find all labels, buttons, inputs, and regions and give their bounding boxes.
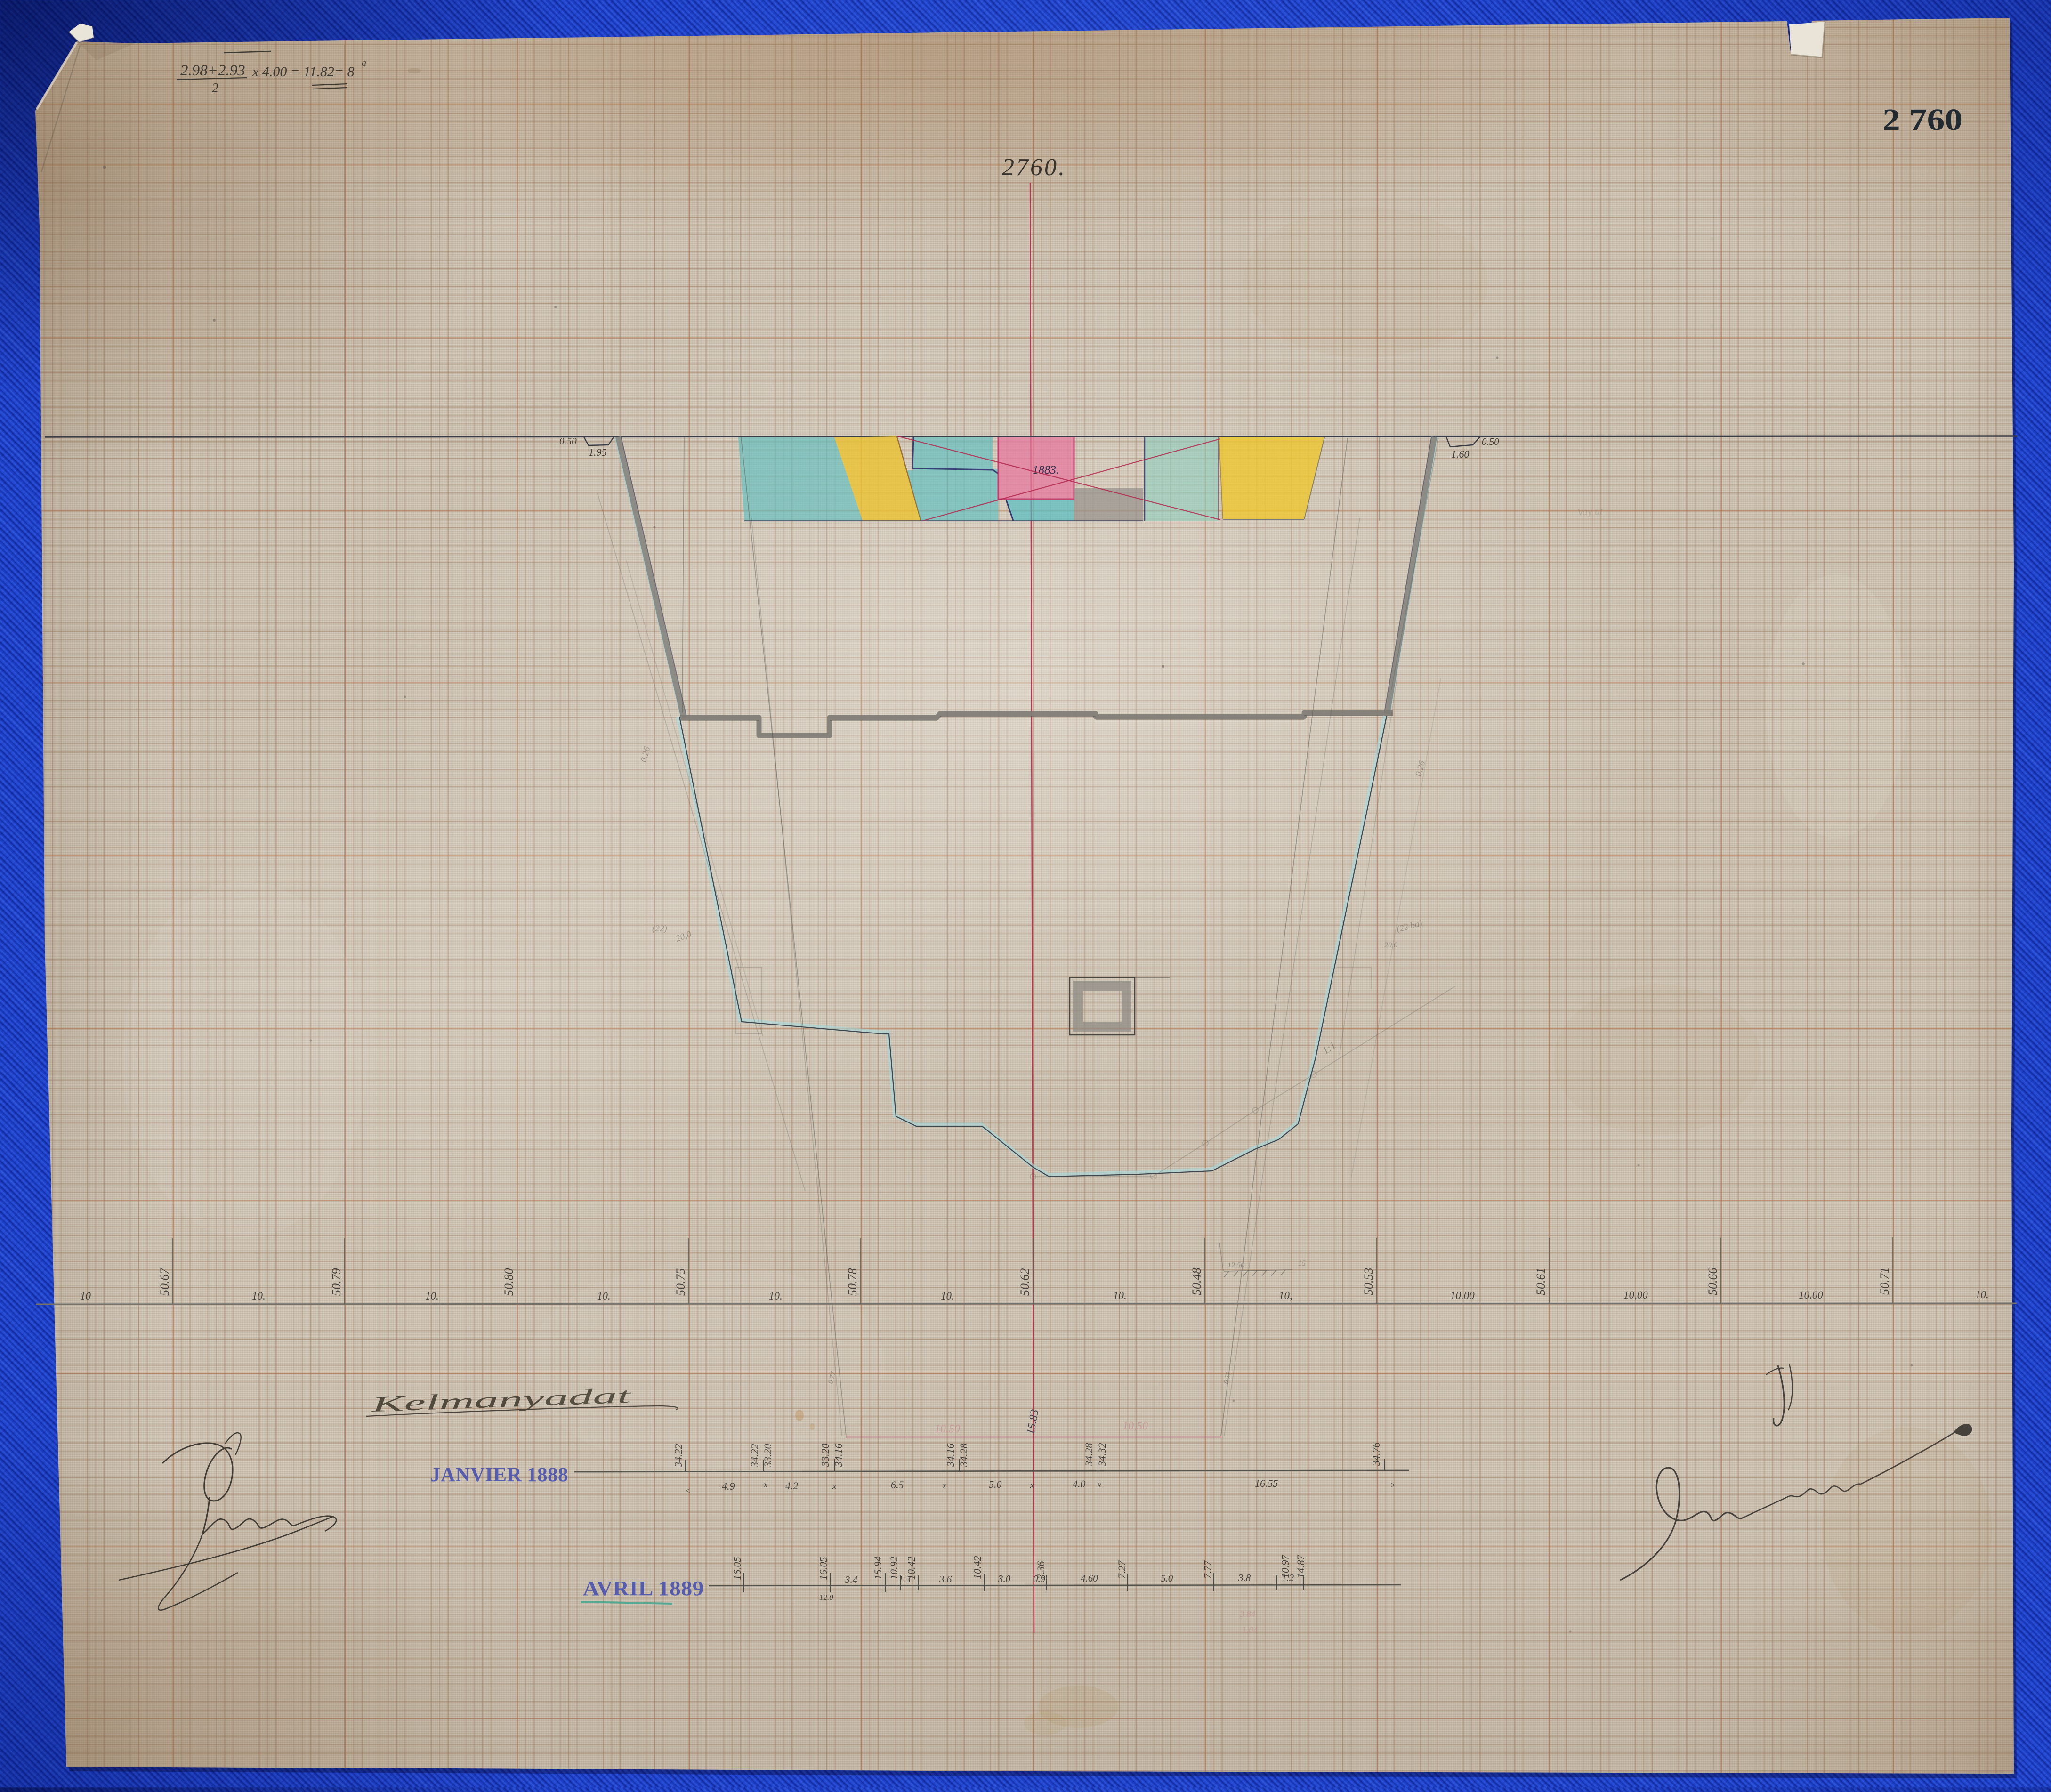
svg-text:3.84: 3.84 — [1239, 1609, 1256, 1619]
svg-text:(22): (22) — [652, 924, 667, 934]
svg-text:34.32: 34.32 — [1096, 1443, 1108, 1467]
svg-text:˃: ˃ — [1390, 1480, 1396, 1490]
svg-text:16.05: 16.05 — [731, 1557, 743, 1581]
svg-text:6.5: 6.5 — [891, 1479, 904, 1491]
svg-text:10.50: 10.50 — [935, 1423, 960, 1435]
svg-text:1.60: 1.60 — [1451, 448, 1470, 460]
svg-text:(22 ba): (22 ba) — [1396, 918, 1423, 935]
svg-text:15.94: 15.94 — [872, 1557, 884, 1580]
svg-text:12.50: 12.50 — [1227, 1261, 1244, 1269]
svg-text:50.78: 50.78 — [846, 1268, 859, 1296]
svg-text:50.61: 50.61 — [1534, 1268, 1548, 1296]
svg-text:1.95: 1.95 — [589, 446, 607, 458]
svg-text:4.2: 4.2 — [785, 1480, 799, 1492]
svg-text:x: x — [1097, 1480, 1101, 1489]
svg-text:x: x — [763, 1480, 767, 1489]
svg-text:1.04: 1.04 — [1242, 1625, 1258, 1635]
svg-text:50.67: 50.67 — [158, 1268, 171, 1296]
svg-text:1:1: 1:1 — [1320, 1039, 1338, 1057]
svg-text:14.87: 14.87 — [1295, 1555, 1307, 1579]
svg-text:0.26: 0.26 — [1414, 759, 1428, 777]
svg-text:10.: 10. — [425, 1290, 439, 1302]
svg-text:10.00: 10.00 — [1799, 1289, 1823, 1301]
svg-text:10: 10 — [80, 1290, 91, 1302]
svg-text:10,50: 10,50 — [1122, 1420, 1148, 1432]
svg-text:Vay ut: Vay ut — [1577, 505, 1603, 518]
svg-text:0.26: 0.26 — [639, 745, 653, 763]
svg-text:3.0: 3.0 — [998, 1573, 1011, 1584]
svg-text:15.83: 15.83 — [1025, 1408, 1041, 1436]
svg-text:50.66: 50.66 — [1706, 1268, 1720, 1296]
svg-text:2.98+2.93: 2.98+2.93 — [180, 62, 245, 79]
svg-text:16.05: 16.05 — [817, 1557, 829, 1581]
svg-text:x: x — [942, 1481, 946, 1490]
svg-text:4.0: 4.0 — [1073, 1478, 1086, 1490]
svg-text:50.71: 50.71 — [1878, 1267, 1891, 1295]
svg-text:7.27: 7.27 — [1116, 1560, 1128, 1579]
svg-text:50.80: 50.80 — [502, 1268, 516, 1296]
svg-text:50.62: 50.62 — [1018, 1268, 1032, 1296]
svg-text:15: 15 — [1298, 1259, 1306, 1267]
svg-text:3.4: 3.4 — [845, 1574, 858, 1585]
svg-text:˂: ˂ — [685, 1486, 691, 1495]
svg-text:5.0: 5.0 — [989, 1478, 1002, 1490]
svg-text:0.9: 0.9 — [1033, 1573, 1046, 1584]
svg-text:0.50: 0.50 — [1482, 436, 1499, 447]
svg-text:3.6: 3.6 — [939, 1574, 952, 1585]
svg-text:10.: 10. — [1975, 1289, 1989, 1300]
svg-text:AVRIL 1889: AVRIL 1889 — [583, 1577, 704, 1600]
svg-text:3.8: 3.8 — [1238, 1572, 1251, 1583]
svg-text:2 760: 2 760 — [1882, 103, 1962, 137]
svg-text:10,: 10, — [1279, 1290, 1292, 1301]
svg-text:16.55: 16.55 — [1255, 1477, 1278, 1489]
svg-text:a: a — [362, 58, 366, 68]
svg-text:0.50: 0.50 — [559, 436, 577, 447]
svg-text:x 4.00 = 11.82= 8: x 4.00 = 11.82= 8 — [252, 64, 355, 80]
svg-text:x: x — [832, 1481, 836, 1491]
svg-text:34.16: 34.16 — [832, 1444, 844, 1468]
svg-text:2760.: 2760. — [1002, 154, 1066, 181]
svg-text:34.76: 34.76 — [1370, 1443, 1382, 1467]
svg-text:50.48: 50.48 — [1190, 1268, 1203, 1296]
svg-text:0.77: 0.77 — [1222, 1370, 1233, 1385]
svg-text:10.00: 10.00 — [1450, 1290, 1475, 1301]
svg-text:1.3: 1.3 — [898, 1574, 911, 1585]
svg-text:7.77: 7.77 — [1202, 1560, 1213, 1579]
svg-text:10.: 10. — [1113, 1290, 1127, 1301]
svg-text:33.20: 33.20 — [819, 1444, 831, 1468]
svg-text:20,0: 20,0 — [1384, 941, 1397, 949]
svg-text:34.28: 34.28 — [958, 1444, 969, 1468]
svg-text:x: x — [1030, 1480, 1034, 1490]
svg-text:2: 2 — [212, 81, 218, 96]
svg-text:10.: 10. — [252, 1290, 266, 1302]
svg-text:34.28: 34.28 — [1083, 1443, 1095, 1467]
svg-text:12.0: 12.0 — [819, 1593, 833, 1602]
svg-text:10.42: 10.42 — [971, 1556, 983, 1580]
svg-text:20,0: 20,0 — [675, 929, 693, 944]
svg-text:4.9: 4.9 — [722, 1480, 735, 1492]
svg-text:JANVIER 1888: JANVIER 1888 — [430, 1464, 568, 1486]
svg-text:10,00: 10,00 — [1623, 1289, 1648, 1301]
svg-text:5.0: 5.0 — [1161, 1573, 1173, 1584]
svg-text:50.53: 50.53 — [1362, 1268, 1375, 1296]
svg-text:50.79: 50.79 — [330, 1268, 343, 1296]
svg-text:1.2: 1.2 — [1282, 1572, 1294, 1583]
svg-text:34.16: 34.16 — [945, 1444, 956, 1468]
svg-text:4.60: 4.60 — [1081, 1573, 1098, 1584]
